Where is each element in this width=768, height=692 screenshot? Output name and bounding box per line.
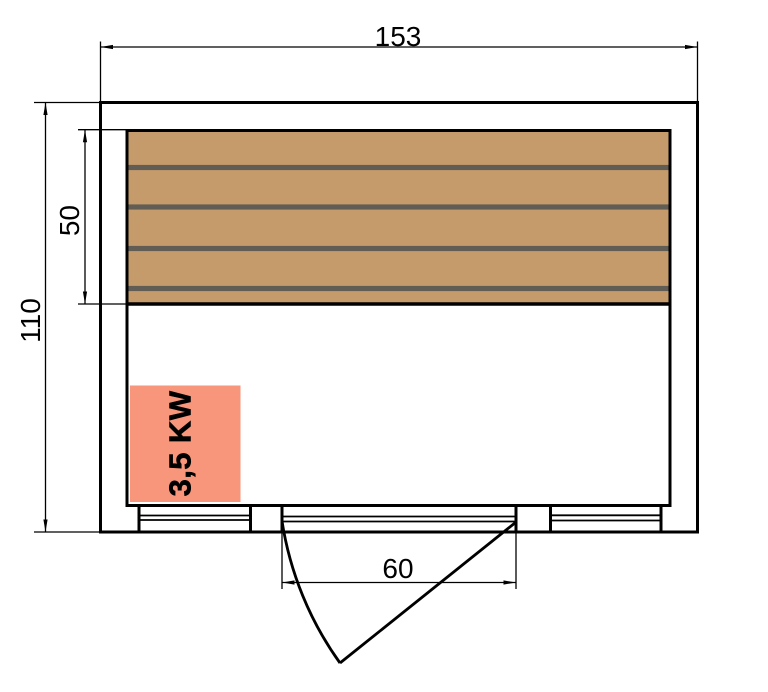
svg-text:60: 60 (382, 553, 413, 584)
svg-text:110: 110 (15, 298, 46, 343)
svg-text:3,5 KW: 3,5 KW (163, 390, 198, 496)
svg-text:153: 153 (375, 21, 422, 52)
svg-text:50: 50 (54, 205, 85, 236)
